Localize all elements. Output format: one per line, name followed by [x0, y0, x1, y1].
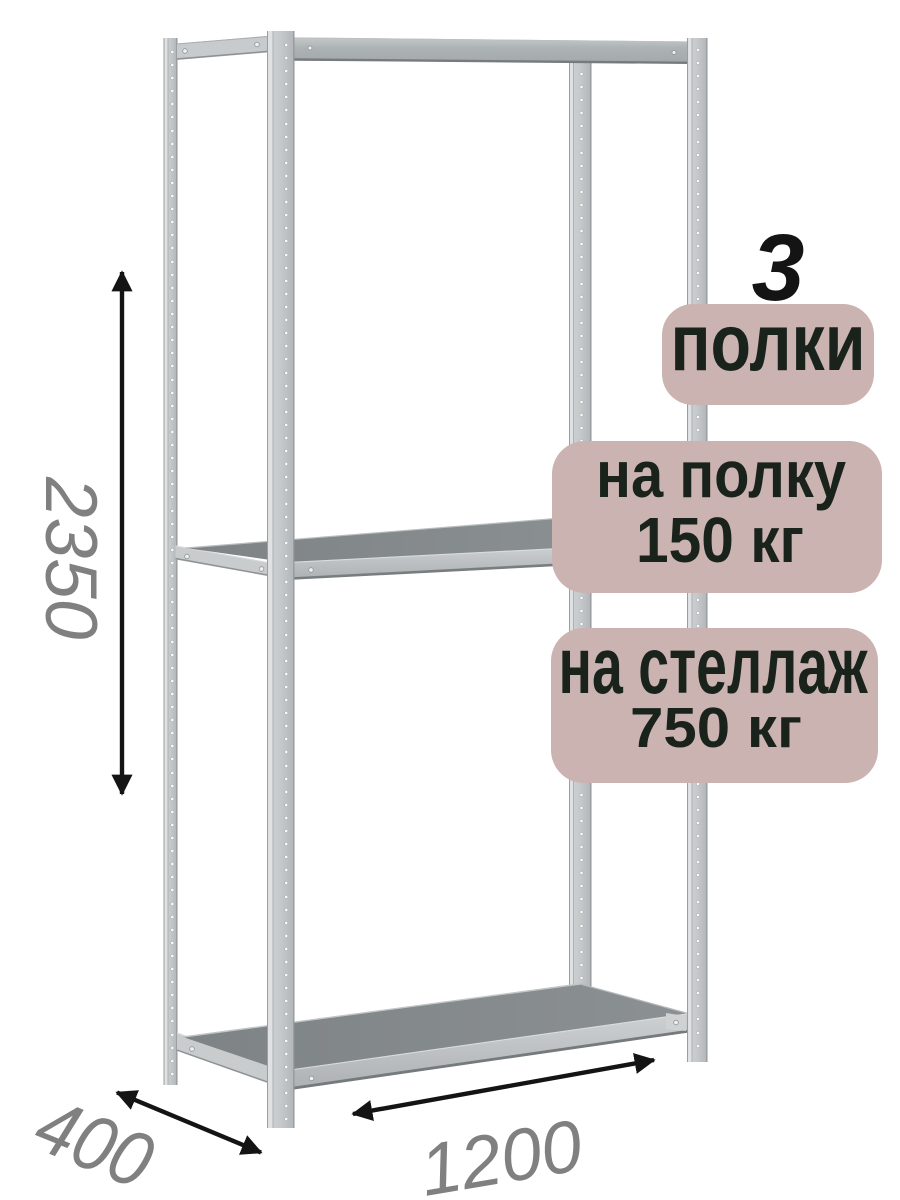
svg-text:750 кг: 750 кг	[630, 696, 802, 760]
svg-text:150 кг: 150 кг	[636, 504, 804, 576]
svg-text:2350: 2350	[30, 476, 111, 639]
svg-text:на полку: на полку	[596, 437, 846, 511]
svg-text:3: 3	[752, 215, 805, 321]
